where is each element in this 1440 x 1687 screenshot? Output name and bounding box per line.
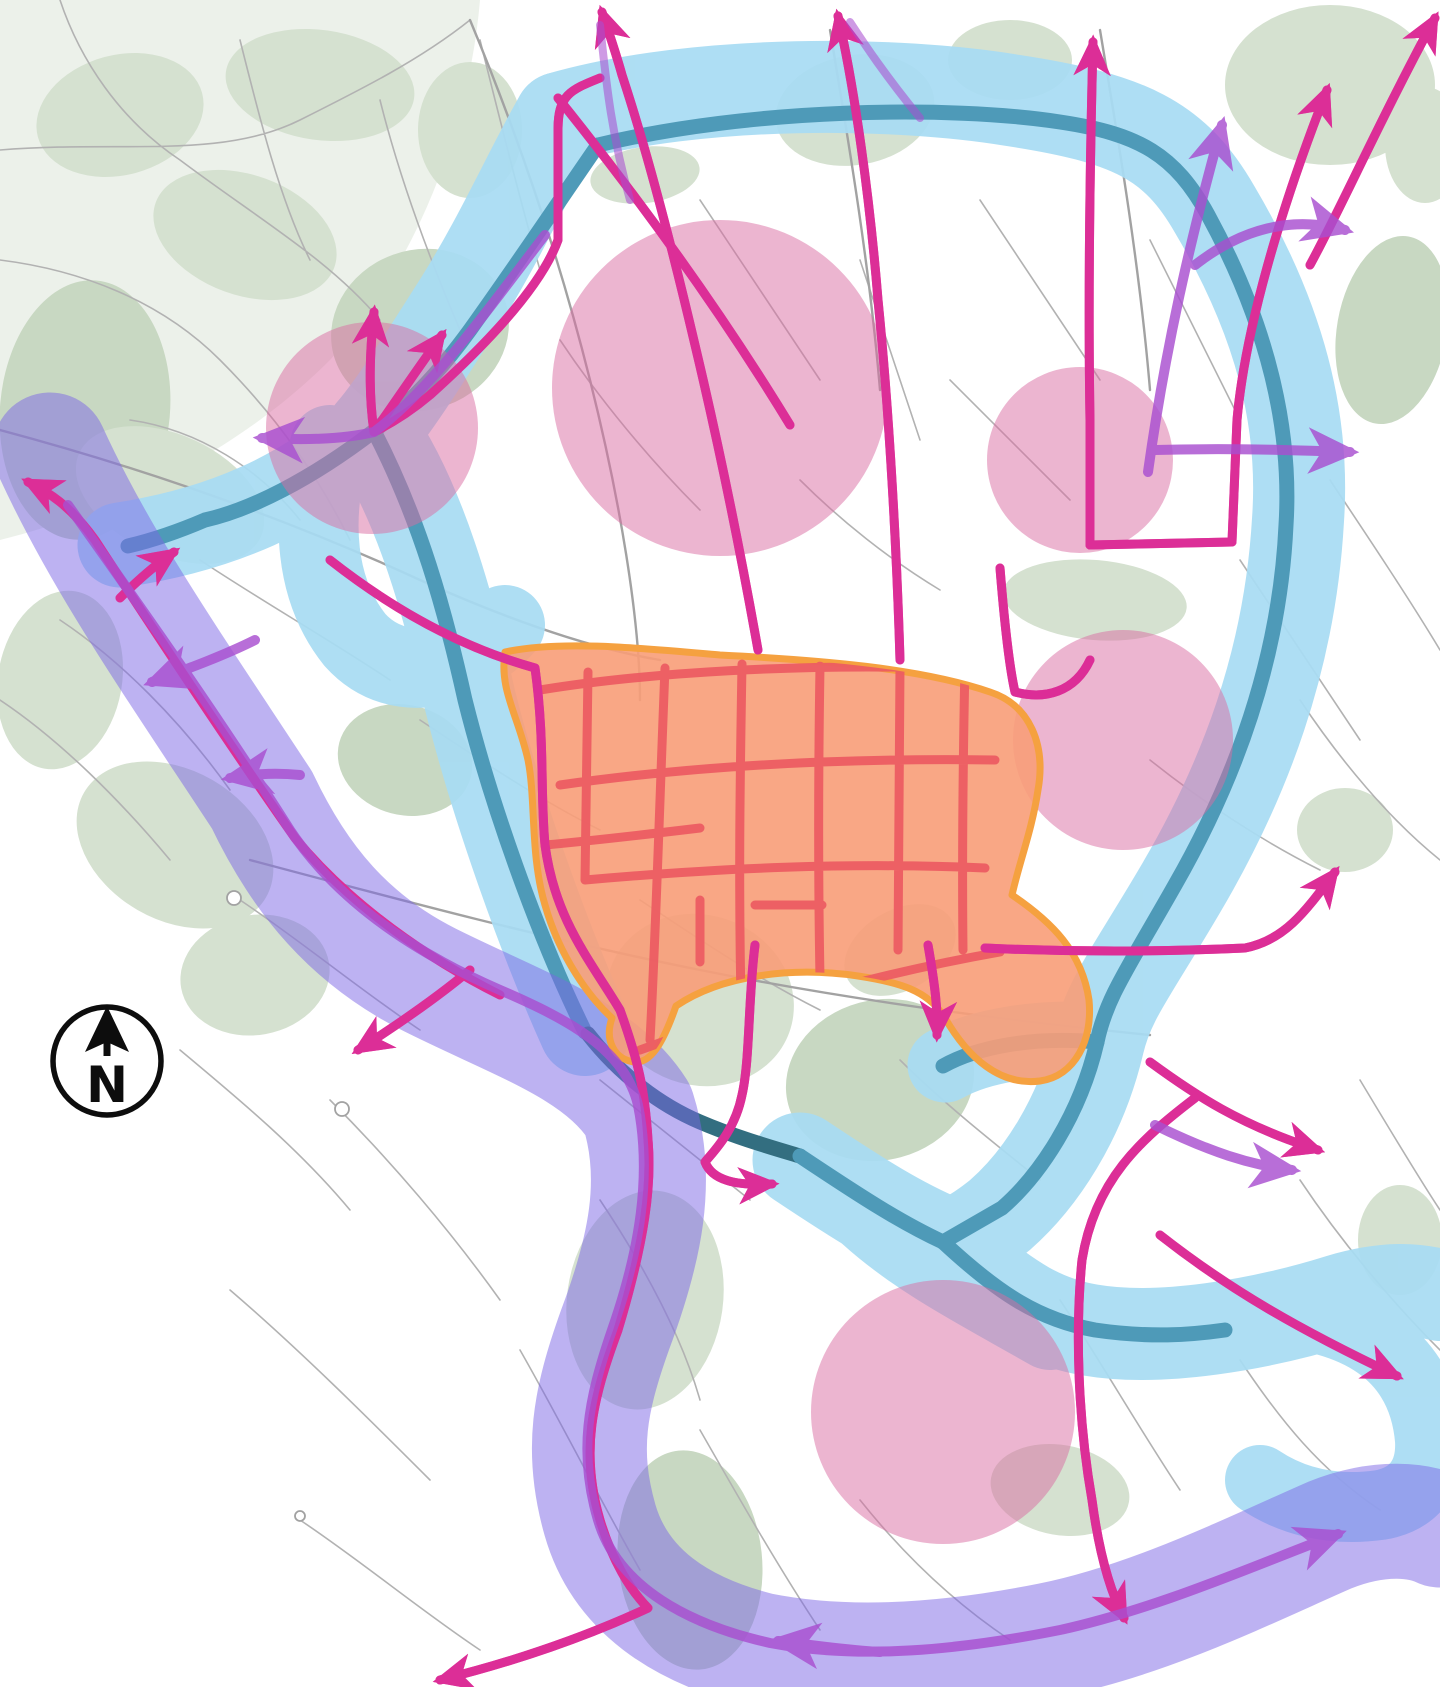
north-label: N	[86, 1056, 128, 1114]
north-compass: N	[53, 1006, 161, 1115]
map-canvas: N	[0, 0, 1440, 1687]
bypass-arrow-sw-2	[230, 774, 300, 778]
district-node	[811, 1280, 1075, 1544]
district-node	[1013, 630, 1233, 850]
district-node	[552, 220, 888, 556]
mobility-plan-map: N	[0, 0, 1440, 1687]
bypass-arrow-east-mid	[1155, 449, 1350, 452]
